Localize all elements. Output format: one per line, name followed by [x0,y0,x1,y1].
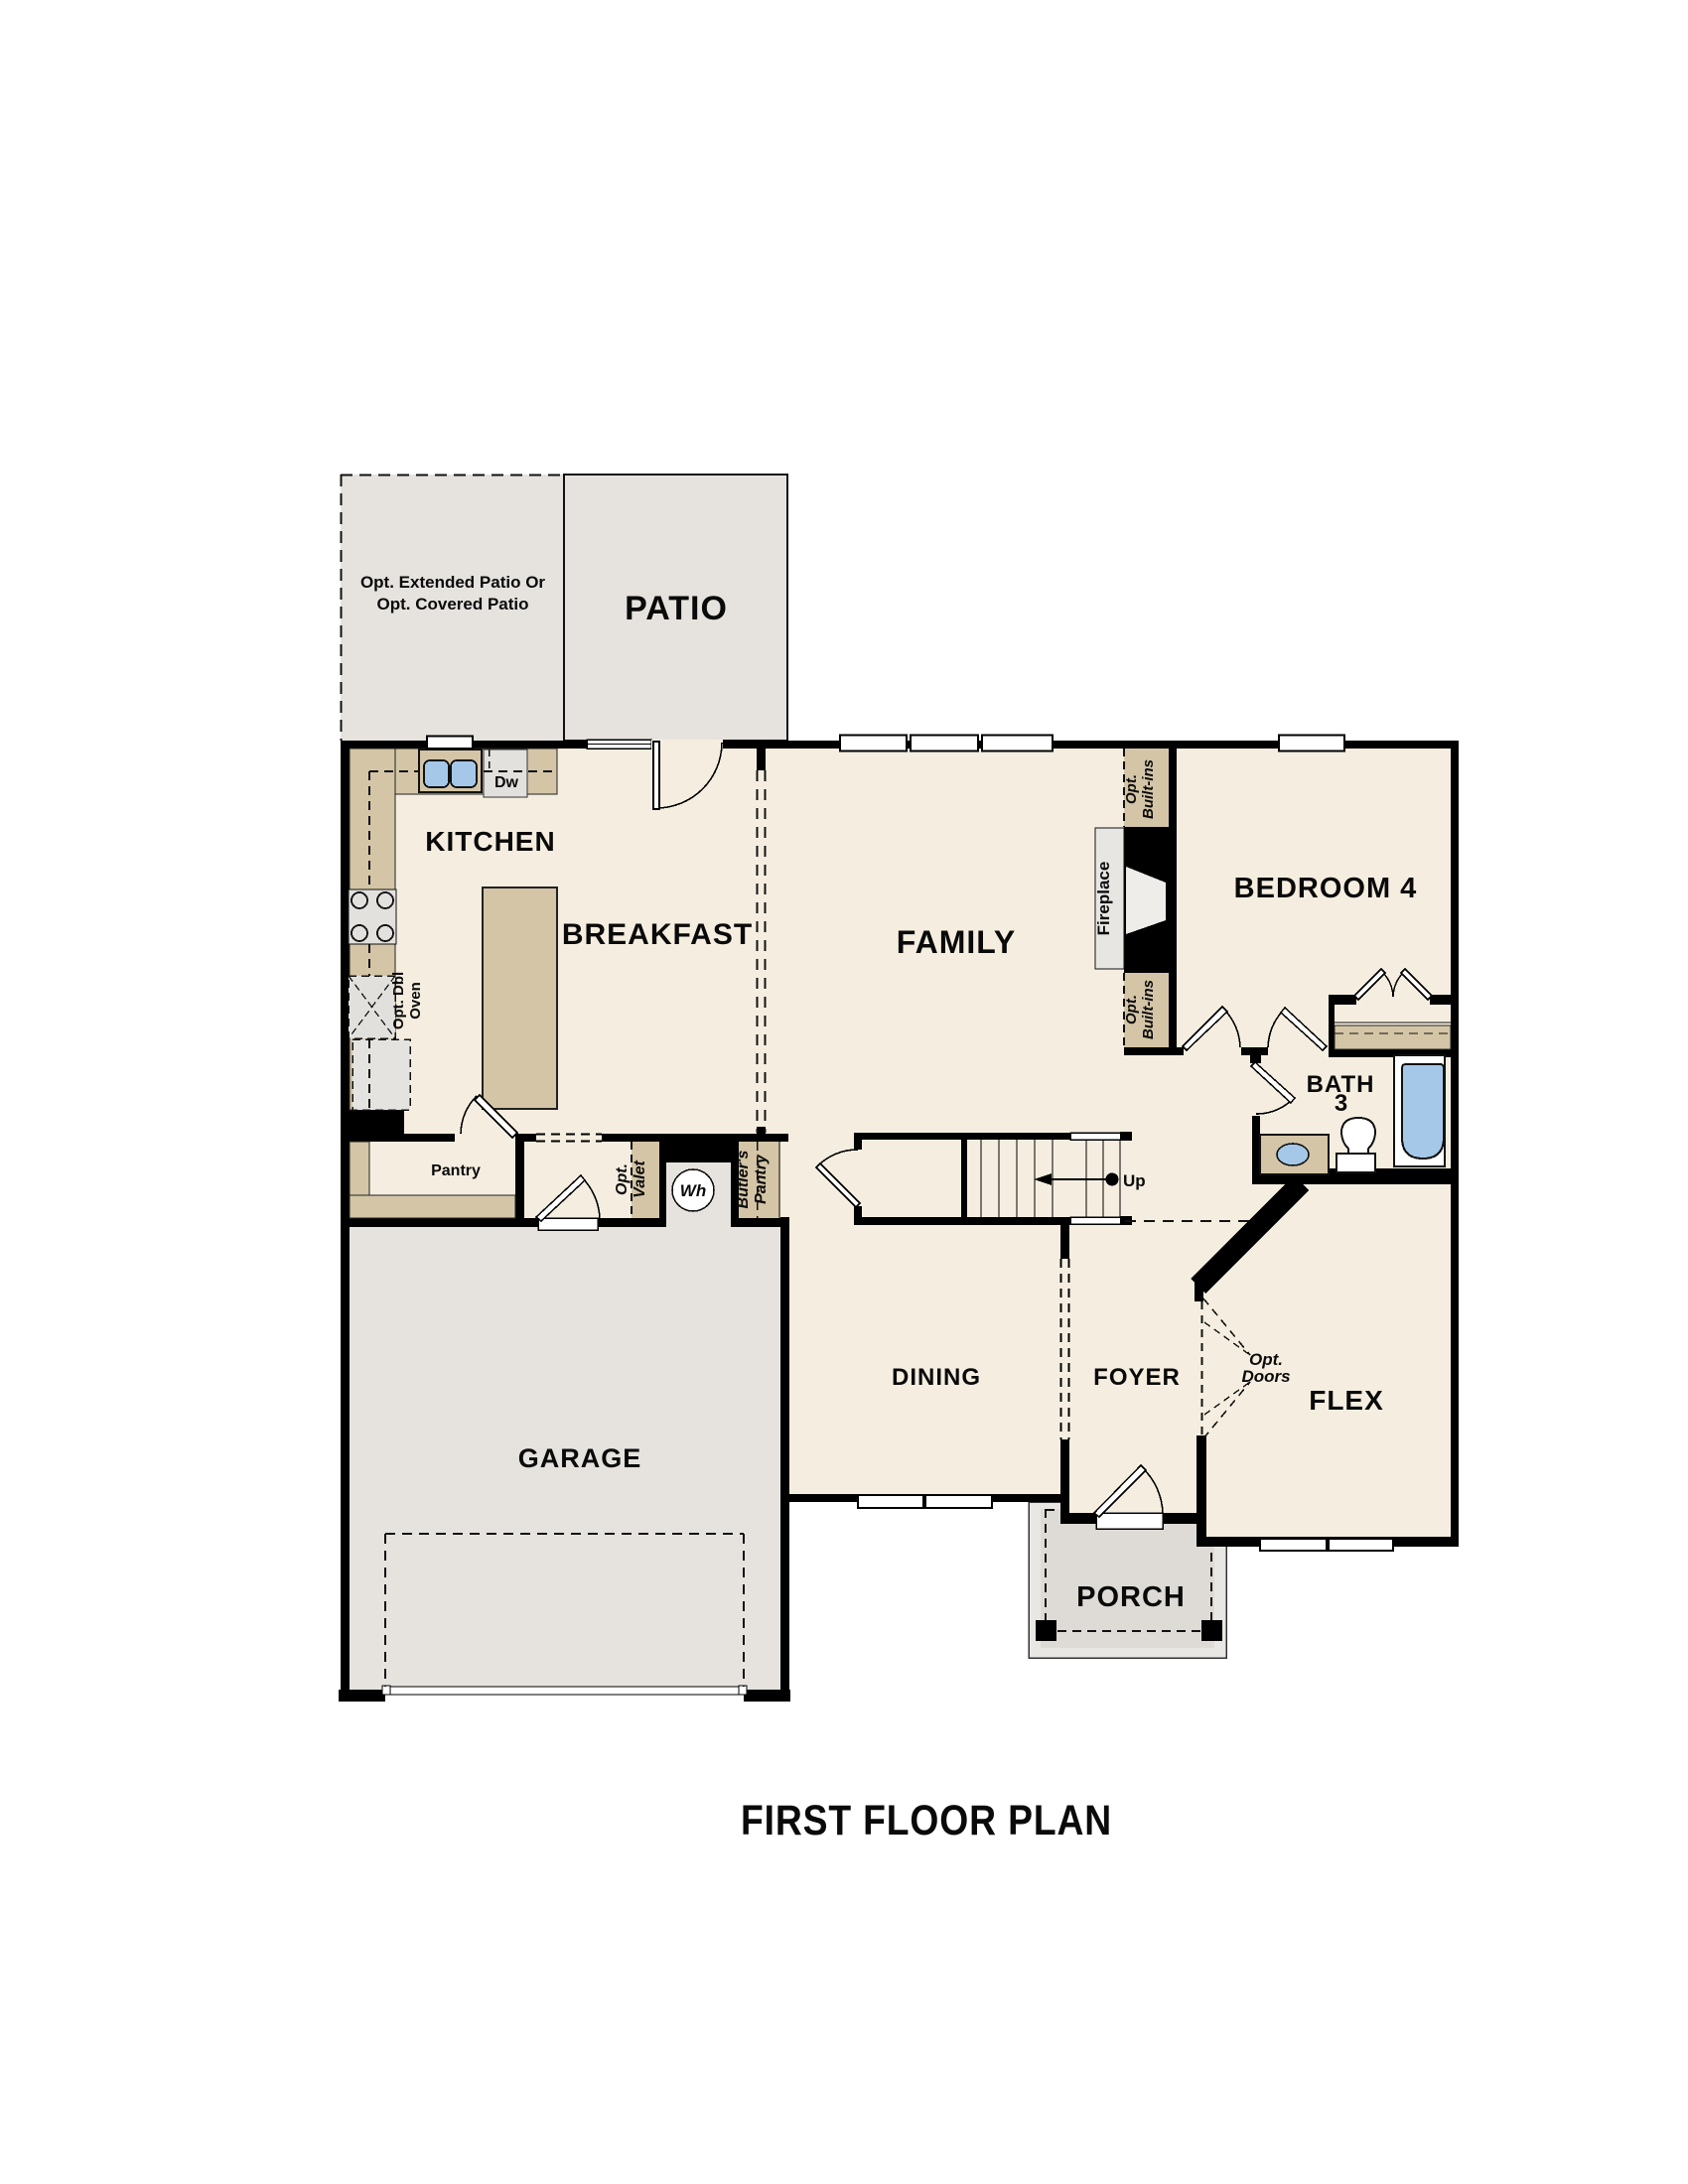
svg-text:Opt.: Opt. [1123,774,1140,804]
svg-text:GARAGE: GARAGE [518,1443,642,1473]
svg-text:Opt. Extended Patio Or: Opt. Extended Patio Or [360,573,545,592]
svg-text:FLEX: FLEX [1309,1385,1384,1416]
svg-text:KITCHEN: KITCHEN [425,826,555,857]
svg-text:DINING: DINING [892,1364,981,1391]
svg-text:Wh: Wh [680,1181,706,1200]
svg-text:FAMILY: FAMILY [897,924,1016,960]
svg-text:Opt. Covered Patio: Opt. Covered Patio [376,595,528,614]
svg-text:3: 3 [1335,1090,1348,1117]
svg-text:Up: Up [1123,1171,1146,1190]
svg-text:Built-ins: Built-ins [1140,980,1157,1039]
svg-text:Oven: Oven [407,982,424,1020]
svg-text:Doors: Doors [1241,1367,1290,1386]
svg-text:BREAKFAST: BREAKFAST [562,918,753,951]
svg-text:Pantry: Pantry [753,1154,770,1204]
svg-text:Valet: Valet [632,1160,648,1198]
svg-text:Dw: Dw [494,774,519,791]
svg-text:Fireplace: Fireplace [1094,862,1113,936]
svg-text:Opt. Dbl: Opt. Dbl [390,972,407,1029]
svg-text:Opt.: Opt. [1123,995,1140,1024]
svg-text:Opt.: Opt. [614,1163,631,1195]
svg-text:Butler's: Butler's [735,1150,752,1208]
svg-text:Pantry: Pantry [431,1162,481,1179]
svg-text:FIRST FLOOR PLAN: FIRST FLOOR PLAN [741,1797,1112,1844]
svg-text:PORCH: PORCH [1076,1581,1186,1613]
svg-text:Built-ins: Built-ins [1140,759,1157,819]
svg-text:BEDROOM 4: BEDROOM 4 [1234,873,1418,904]
svg-text:FOYER: FOYER [1093,1364,1181,1391]
svg-text:PATIO: PATIO [625,590,728,627]
